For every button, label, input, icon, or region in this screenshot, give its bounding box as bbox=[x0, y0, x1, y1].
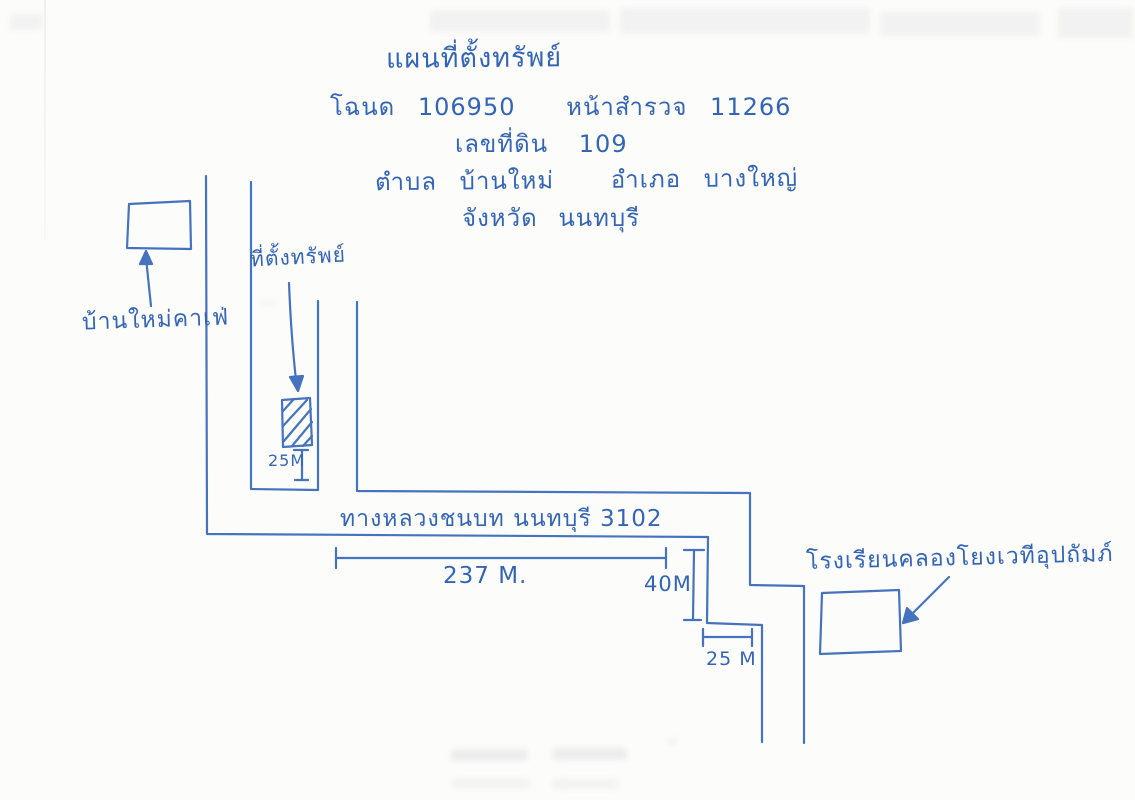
cafe-label: บ้านใหม่คาเฟ่ bbox=[82, 305, 230, 335]
road-label: ทางหลวงชนบท นนทบุรี 3102 bbox=[340, 507, 663, 532]
measurement-237m-label: 237 M. bbox=[443, 564, 527, 589]
admin-line: ตำบล บ้านใหม่ อำเภอ บางใหญ่ bbox=[375, 165, 798, 196]
cafe-building-box bbox=[127, 201, 191, 249]
property-plot-hatched bbox=[282, 398, 312, 447]
road-edge-inner-and-lane bbox=[251, 182, 318, 490]
arrow-to-property-icon bbox=[289, 283, 303, 391]
parcel-number: 109 bbox=[579, 130, 628, 158]
school-building-box bbox=[820, 590, 901, 654]
province-line: จังหวัด นนทบุรี bbox=[462, 205, 640, 231]
scanned-map-page: แผนที่ตั้งทรัพย์ โฉนด 106950 หน้าสำรวจ 1… bbox=[0, 0, 1135, 800]
province-name: นนทบุรี bbox=[558, 204, 640, 232]
survey-page-label: หน้าสำรวจ bbox=[566, 93, 687, 121]
measurement-25m-side-label: 25 M bbox=[706, 649, 757, 670]
subdistrict-name: บ้านใหม่ bbox=[460, 166, 555, 195]
district-label: อำเภอ bbox=[611, 165, 682, 194]
survey-page-number: 11266 bbox=[710, 93, 791, 121]
district-name: บางใหญ่ bbox=[704, 164, 799, 193]
deed-label: โฉนด bbox=[330, 93, 395, 121]
parcel-label: เลขที่ดิน bbox=[455, 130, 548, 158]
subdistrict-label: ตำบล bbox=[375, 168, 437, 197]
deed-line: โฉนด 106950 หน้าสำรวจ 11266 bbox=[330, 94, 791, 120]
measurement-40m-label: 40M bbox=[644, 573, 692, 596]
deed-number: 106950 bbox=[418, 93, 516, 121]
parcel-line: เลขที่ดิน 109 bbox=[455, 131, 628, 157]
arrow-to-school-icon bbox=[903, 577, 949, 623]
page-title: แผนที่ตั้งทรัพย์ bbox=[386, 43, 562, 74]
arrow-to-cafe-icon bbox=[140, 251, 152, 306]
province-label: จังหวัด bbox=[462, 204, 538, 232]
measurement-25m-property-label: 25M bbox=[268, 452, 305, 470]
dimension-25m-side bbox=[703, 629, 752, 646]
